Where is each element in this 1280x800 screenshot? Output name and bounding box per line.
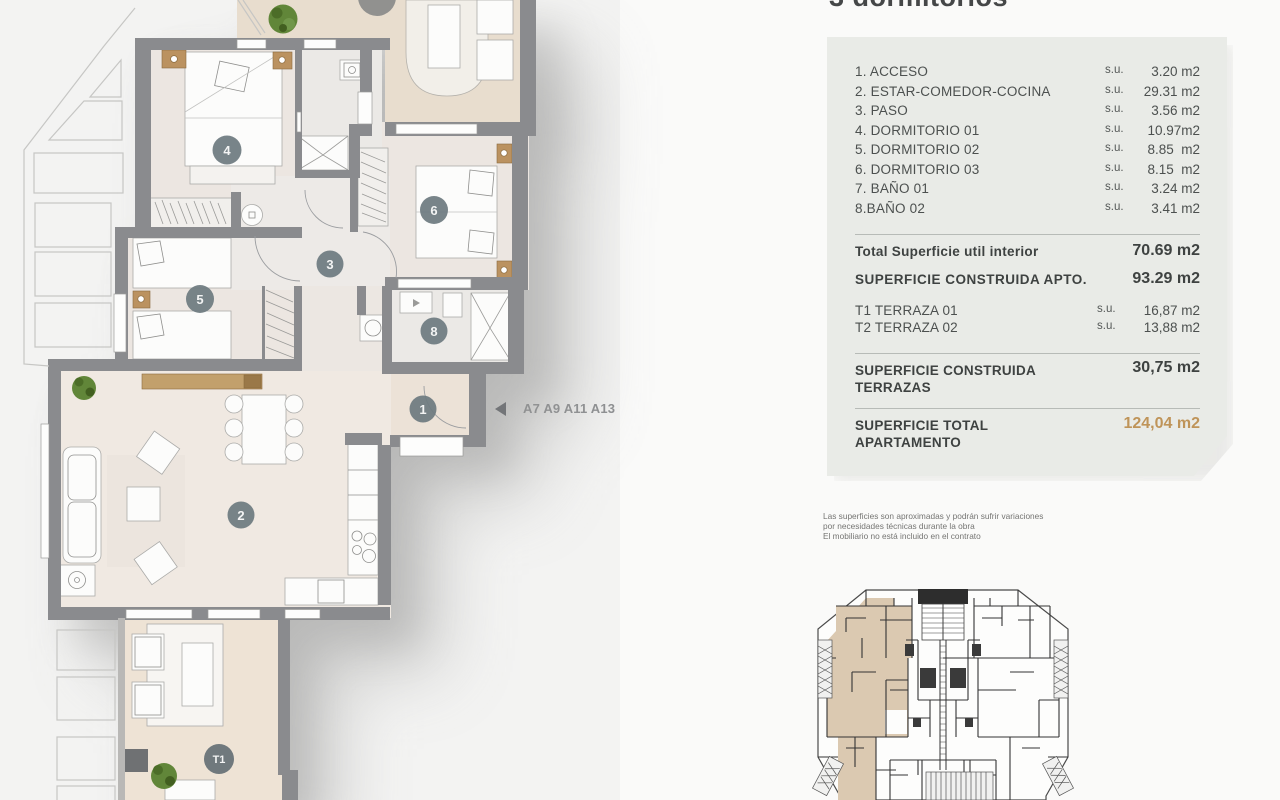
svg-text:4: 4 xyxy=(223,143,231,158)
svg-text:3: 3 xyxy=(326,257,333,272)
svg-text:8: 8 xyxy=(430,324,437,339)
svg-text:1: 1 xyxy=(419,402,426,417)
svg-text:6: 6 xyxy=(430,203,437,218)
svg-text:T1: T1 xyxy=(213,754,226,766)
svg-text:5: 5 xyxy=(196,292,203,307)
svg-text:2: 2 xyxy=(237,508,244,523)
